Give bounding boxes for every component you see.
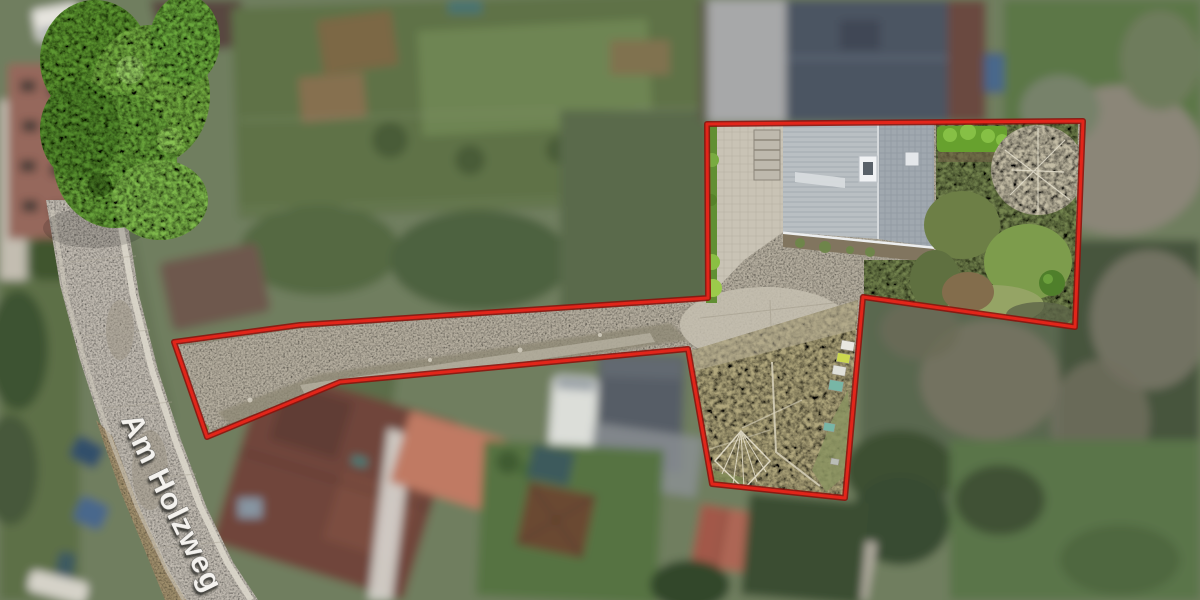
solar-panel [984,54,1006,92]
bush-ball [1039,270,1065,296]
roof-dormer [840,20,880,50]
neighbor-driveway [706,0,788,122]
neighbor-house-north-roof [786,0,950,122]
south-hedge [741,493,869,600]
roof-skylight [238,498,262,518]
aerial-photo-stage: Am Holzweg [0,0,1200,600]
skylight [905,152,919,166]
soil-patch [942,272,994,312]
brown-annex [948,0,986,122]
aerial-photo: Am Holzweg [0,0,1200,600]
chimney-flue [863,162,873,175]
twig-bush [991,125,1085,215]
bush-ball-highlight [1043,274,1053,284]
blue-shed [448,0,482,14]
boundary-fence-strip [698,0,708,122]
main-house-roof [783,123,934,252]
terrace-steps [754,130,780,180]
